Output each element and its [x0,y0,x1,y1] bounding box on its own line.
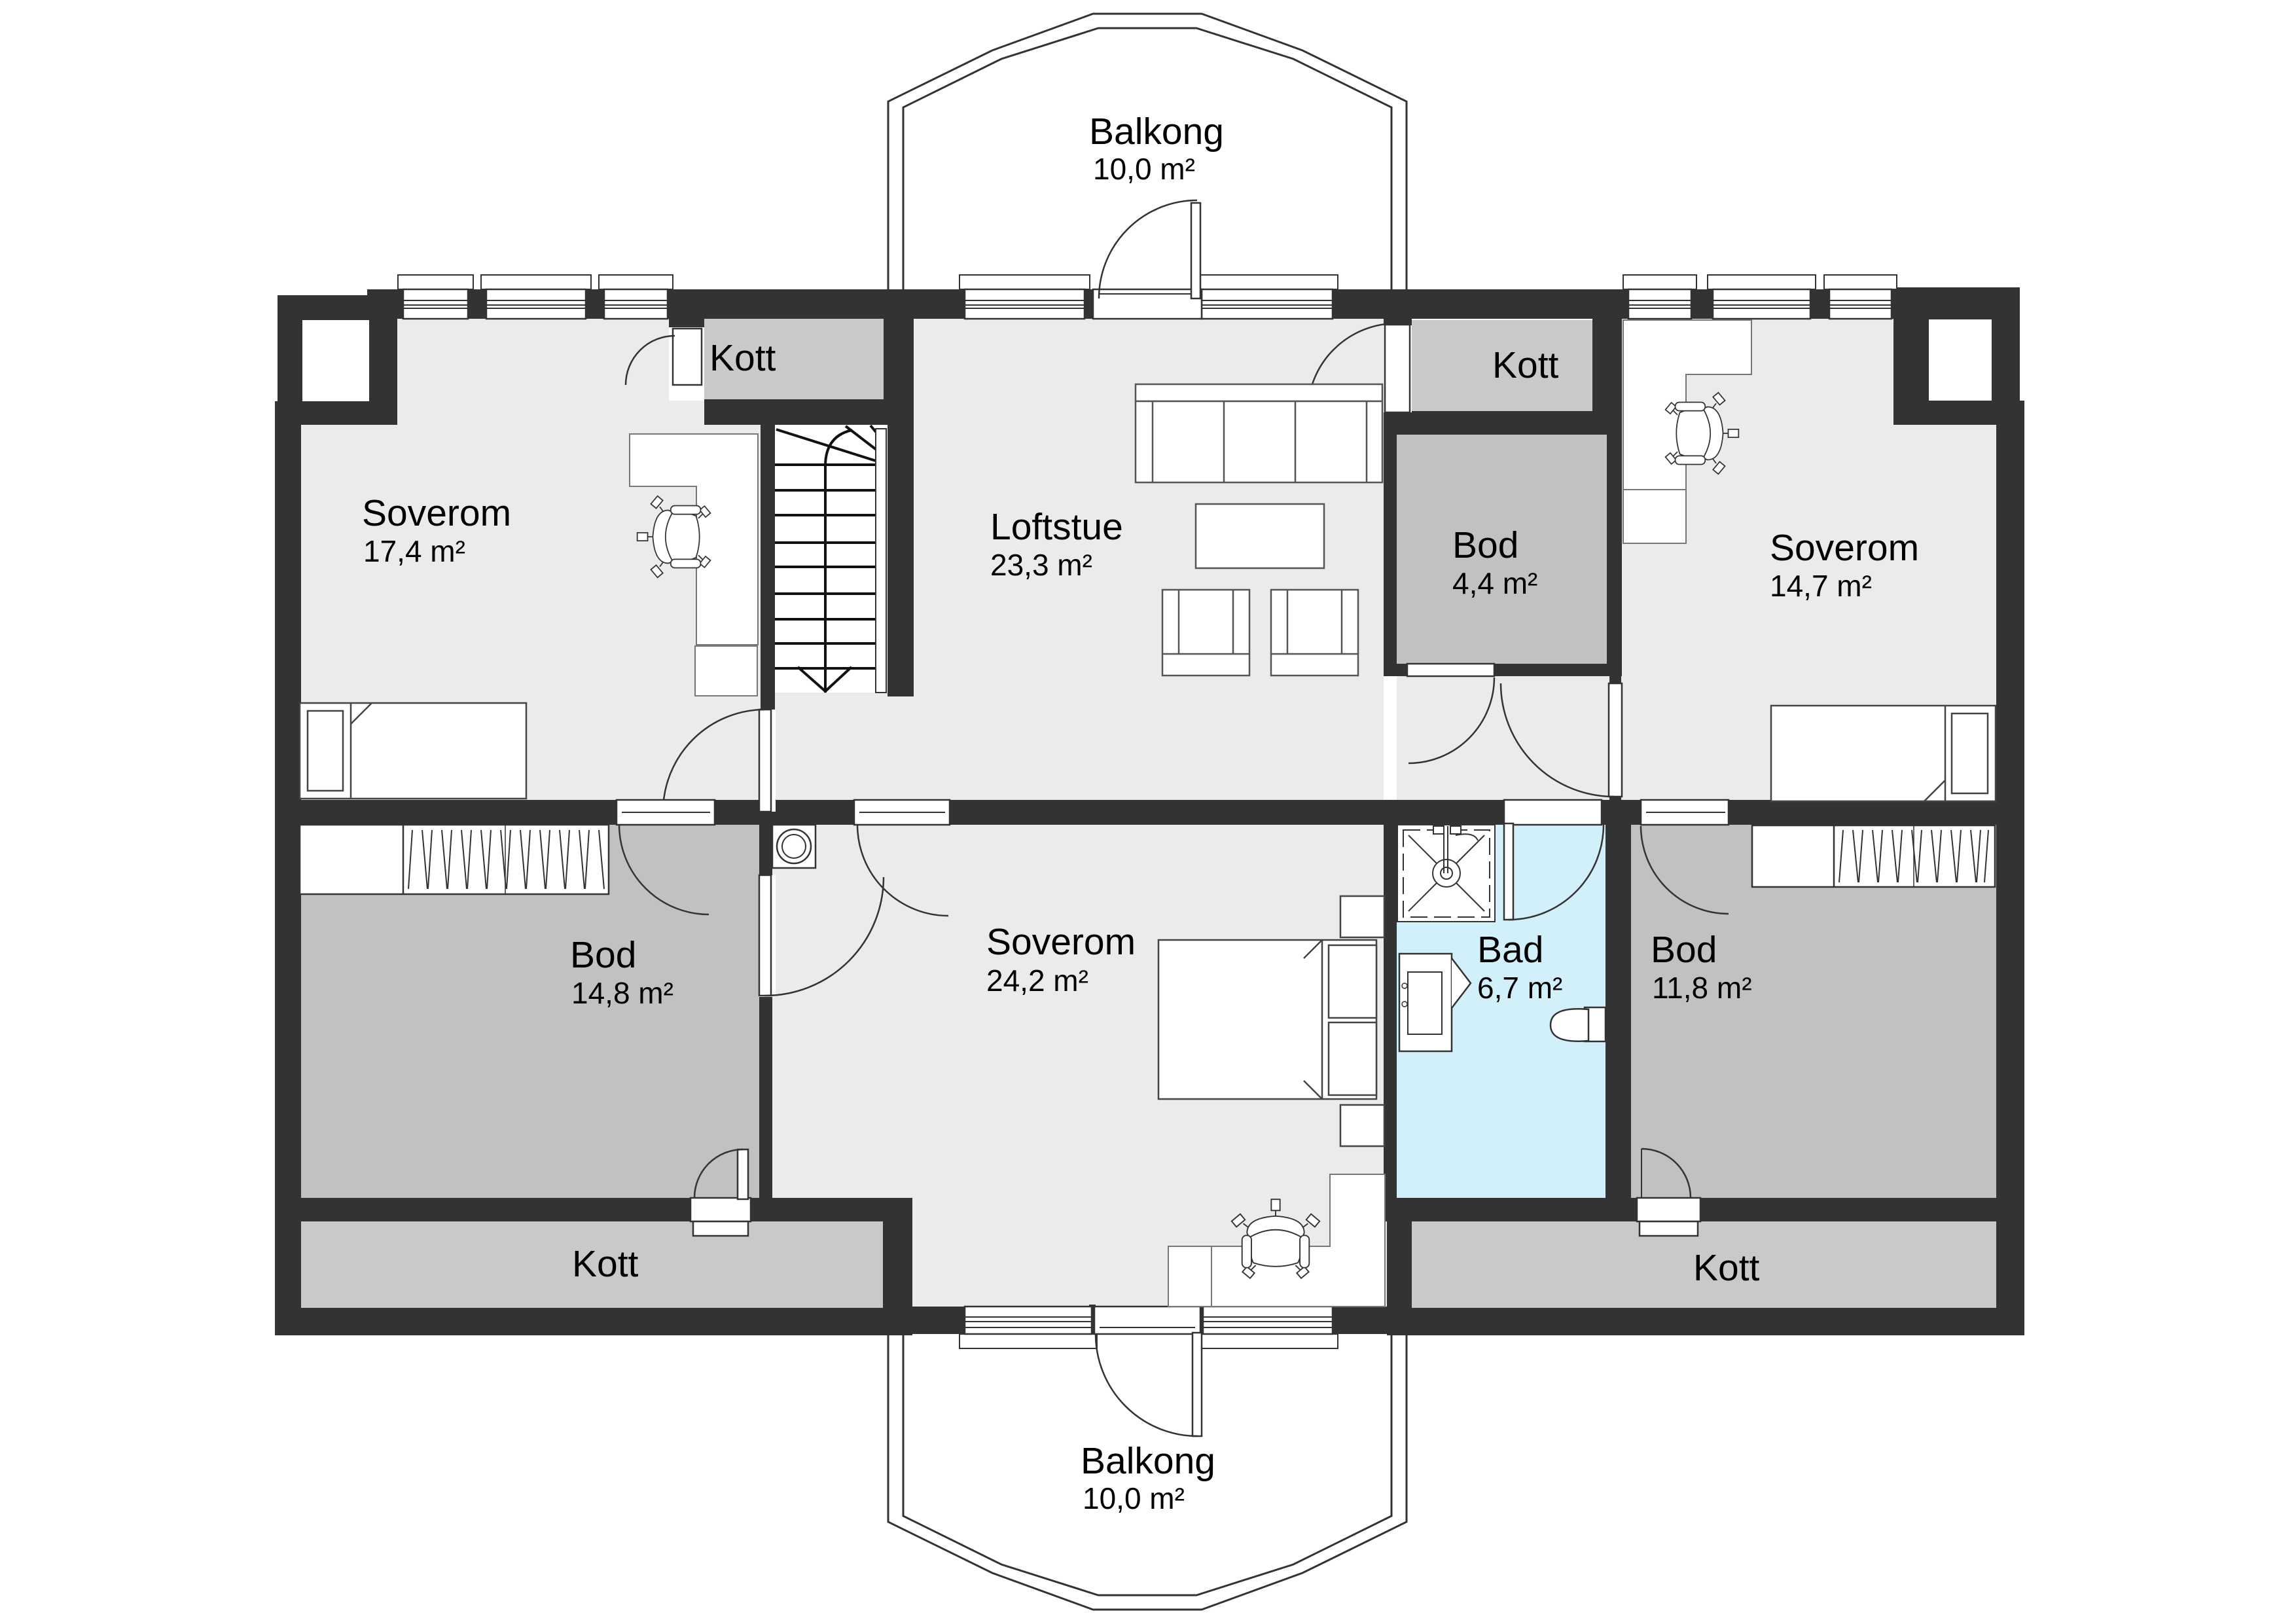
svg-text:Kott: Kott [572,1243,639,1285]
svg-text:10,0 m²: 10,0 m² [1093,152,1195,186]
svg-text:24,2 m²: 24,2 m² [986,964,1088,998]
svg-text:23,3 m²: 23,3 m² [990,548,1092,582]
svg-text:14,8 m²: 14,8 m² [571,976,673,1010]
svg-text:Bad: Bad [1477,929,1543,971]
svg-text:Kott: Kott [709,337,776,379]
svg-text:Bod: Bod [1452,524,1518,566]
svg-text:Balkong: Balkong [1089,111,1224,153]
svg-text:Soverom: Soverom [1770,527,1919,569]
svg-text:14,7 m²: 14,7 m² [1770,569,1872,603]
svg-text:4,4 m²: 4,4 m² [1452,566,1537,600]
svg-text:17,4 m²: 17,4 m² [363,534,465,568]
svg-text:Bod: Bod [570,934,636,976]
svg-text:Kott: Kott [1492,344,1559,386]
svg-text:Kott: Kott [1693,1247,1760,1289]
svg-text:6,7 m²: 6,7 m² [1477,971,1562,1005]
svg-text:Loftstue: Loftstue [990,506,1123,548]
svg-text:11,8 m²: 11,8 m² [1652,971,1752,1005]
svg-text:Soverom: Soverom [362,492,511,534]
svg-text:Bod: Bod [1651,929,1717,971]
svg-text:Soverom: Soverom [986,921,1136,963]
svg-text:10,0 m²: 10,0 m² [1083,1481,1185,1515]
svg-text:Balkong: Balkong [1081,1440,1215,1482]
